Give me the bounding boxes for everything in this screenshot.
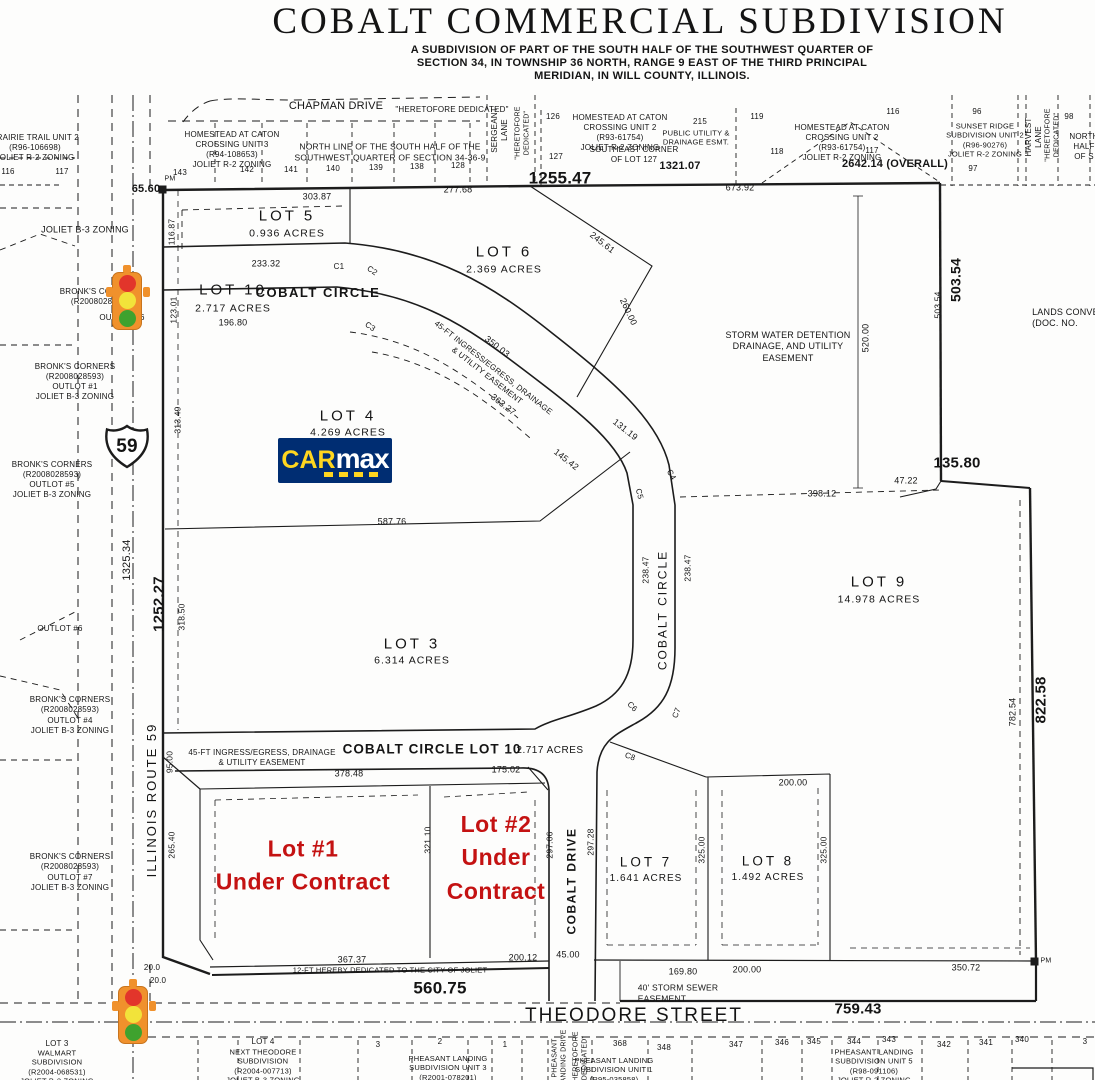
lot10-acres: 2.717 ACRES bbox=[195, 302, 271, 315]
dim-520-00: 520.00 bbox=[860, 324, 871, 353]
outlot-4-label: OUTLOT #4 JOLIET B-3 ZONING bbox=[31, 716, 109, 736]
lot2-under-contract: Lot #2 Under Contract bbox=[447, 808, 546, 908]
parcel-97: 97 bbox=[968, 164, 977, 174]
bronks-corners-1: BRONK'S CORNERS (R2008028593) bbox=[35, 362, 116, 382]
next-theodore-label: NEXT THEODORE SUBDIVISION (R2004-007713)… bbox=[226, 1047, 300, 1080]
parcel-117: 117 bbox=[55, 167, 68, 177]
homestead-unit2-east-label: HOMESTEAD AT CATON CROSSING UNIT 2 (R93-… bbox=[794, 123, 889, 163]
harvest-dedicated-note: "HERETOFORE DEDICATED" bbox=[1044, 108, 1062, 161]
road-harvest-lane: HARVEST LANE bbox=[1024, 117, 1044, 156]
curve-c1: C1 bbox=[334, 262, 345, 272]
parcel-344: 344 bbox=[847, 1037, 861, 1047]
walmart-subdivision-label: WALMART SUBDIVISION (R2004-068531) JOLIE… bbox=[20, 1048, 94, 1080]
parcel-127: 127 bbox=[549, 152, 563, 162]
parcel-98: 98 bbox=[1064, 112, 1073, 122]
dim-20-0-b: 20.0 bbox=[150, 976, 166, 986]
dim-2642-14-overall: 2642.14 (OVERALL) bbox=[842, 158, 948, 172]
dim-297-06: 297.06 bbox=[545, 831, 556, 858]
parcel-142: 142 bbox=[240, 165, 254, 175]
carmax-logo-dashes bbox=[324, 472, 382, 477]
lot9-acres: 14.978 ACRES bbox=[838, 593, 921, 606]
dim-95-00: 95.00 bbox=[165, 751, 176, 773]
parcel-116: 116 bbox=[1, 167, 14, 177]
dim-759-43: 759.43 bbox=[834, 1001, 881, 1020]
dim-321-10: 321.10 bbox=[423, 826, 434, 853]
parcel-342: 342 bbox=[937, 1040, 951, 1050]
lot7-acres: 1.641 ACRES bbox=[610, 873, 683, 886]
dim-350-72: 350.72 bbox=[952, 962, 981, 973]
parcel-215: 215 bbox=[693, 117, 707, 127]
dim-1325-34: 1325.34 bbox=[121, 539, 135, 580]
dim-1321-07: 1321.07 bbox=[659, 160, 700, 174]
pm-marker-top-label: PM bbox=[165, 176, 176, 185]
road-cobalt-circle-vertical: COBALT CIRCLE bbox=[656, 550, 671, 670]
dim-116-87: 116.87 bbox=[167, 219, 178, 246]
dim-398-12: 398.12 bbox=[808, 488, 837, 499]
dim-200-12: 200.12 bbox=[509, 952, 538, 963]
prairie-trail-label: PRAIRIE TRAIL UNIT 2 (R96-106698) JOLIET… bbox=[0, 133, 79, 163]
dim-303-87: 303.87 bbox=[303, 191, 332, 202]
dim-20-0-a: 20.0 bbox=[144, 963, 160, 973]
outlot-6-south-label: OUTLOT #6 bbox=[37, 624, 82, 634]
outlot-1-label: OUTLOT #1 JOLIET B-3 ZONING bbox=[36, 382, 114, 402]
road-theodore-street: THEODORE STREET bbox=[525, 1004, 743, 1028]
yellow-light bbox=[119, 292, 136, 309]
lot5-acres: 0.936 ACRES bbox=[249, 227, 325, 240]
traffic-light-icon bbox=[118, 986, 148, 1044]
dim-822-58: 822.58 bbox=[1033, 676, 1052, 723]
dim-1252-27: 1252.27 bbox=[151, 576, 170, 632]
outlot-5-label: OUTLOT #5 JOLIET B-3 ZONING bbox=[13, 480, 91, 500]
road-cobalt-drive: COBALT DRIVE bbox=[565, 827, 580, 934]
red-light bbox=[125, 989, 142, 1006]
dim-318-50: 318.50 bbox=[177, 603, 188, 630]
dim-65-60: 65.60 bbox=[132, 183, 161, 197]
lot9-name: LOT 9 bbox=[851, 574, 907, 593]
green-light bbox=[119, 310, 136, 327]
pheasant-unit1-label: PHEASANT LANDING SUBDIVISION UNIT 1 (R95… bbox=[575, 1056, 654, 1080]
parcel-368: 368 bbox=[613, 1039, 627, 1049]
dim-313-49: 313.49 bbox=[173, 406, 184, 433]
dim-238-47-east: 238.47 bbox=[683, 554, 694, 581]
homestead-unit3-label: HOMESTEAD AT CATON CROSSING UNIT 3 (R94-… bbox=[184, 130, 279, 170]
lot8-name: LOT 8 bbox=[742, 854, 794, 871]
lot1-under-contract: Lot #1 Under Contract bbox=[216, 833, 390, 900]
dim-325-00-west: 325.00 bbox=[697, 836, 708, 863]
dim-587-76: 587.76 bbox=[378, 516, 407, 527]
page-title: COBALT COMMERCIAL SUBDIVISION bbox=[272, 0, 1007, 45]
sergeant-dedicated-note: "HERETOFORE DEDICATED" bbox=[514, 106, 532, 159]
dim-238-47-west: 238.47 bbox=[641, 556, 652, 583]
lot3-name: LOT 3 bbox=[384, 636, 440, 655]
subtitle-line-1: A SUBDIVISION OF PART OF THE SOUTH HALF … bbox=[411, 44, 874, 58]
dim-175-02: 175.02 bbox=[492, 764, 521, 775]
red-light bbox=[119, 275, 136, 292]
parcel-346: 346 bbox=[775, 1038, 789, 1048]
parcel-343: 343 bbox=[882, 1035, 896, 1045]
traffic-light-icon bbox=[112, 272, 142, 330]
pm-marker-bottom-label: PM bbox=[1041, 958, 1052, 967]
pheasant-unit5-label: PHEASANT LANDING SUBDIVISION UNIT 5 (R98… bbox=[835, 1047, 914, 1080]
dim-135-80: 135.80 bbox=[933, 455, 980, 474]
dim-265-40: 265.40 bbox=[167, 831, 178, 858]
dim-503-54-small: 503.54 bbox=[933, 291, 944, 318]
dim-503-54-large: 503.54 bbox=[947, 258, 965, 302]
route-59-shield: 59 bbox=[116, 435, 138, 459]
parcel-340: 340 bbox=[1015, 1035, 1029, 1045]
easement-storm-sewer: 40' STORM SEWER EASEMENT bbox=[638, 982, 719, 1003]
subtitle-line-3: MERIDIAN, IN WILL COUNTY, ILLINOIS. bbox=[534, 70, 750, 84]
outlot-7-label: OUTLOT #7 JOLIET B-3 ZONING bbox=[31, 873, 109, 893]
bronks-corners-4: BRONK'S CORNERS (R2008028593) bbox=[30, 695, 111, 715]
parcel-138: 138 bbox=[410, 162, 424, 172]
bronks-corners-7: BRONK'S CORNERS (R2008028593) bbox=[30, 852, 111, 872]
parcel-347: 347 bbox=[729, 1040, 743, 1050]
next-theodore-lot-number: LOT 4 bbox=[251, 1037, 274, 1047]
dim-1255-47: 1255.47 bbox=[529, 167, 592, 188]
parcel-139: 139 bbox=[369, 163, 383, 173]
joliet-b3-zoning-label: JOLIET B-3 ZONING bbox=[41, 224, 129, 235]
road-illinois-route-59: ILLINOIS ROUTE 59 bbox=[144, 723, 160, 878]
lot8-acres: 1.492 ACRES bbox=[732, 872, 805, 885]
parcel-128: 128 bbox=[451, 161, 465, 171]
parcel-96: 96 bbox=[972, 107, 981, 117]
parcel-348: 348 bbox=[657, 1043, 671, 1053]
dim-200-00-top: 200.00 bbox=[779, 777, 808, 788]
lot5-name: LOT 5 bbox=[259, 208, 315, 227]
dim-169-80: 169.80 bbox=[669, 966, 698, 977]
carmax-logo-car: CAR bbox=[281, 446, 335, 475]
parcel-141: 141 bbox=[284, 165, 298, 175]
dim-378-48: 378.48 bbox=[335, 768, 364, 779]
road-pheasant-landing-drive: PHEASANT LANDING DRIVE bbox=[551, 1029, 569, 1080]
road-cobalt-circle-upper: COBALT CIRCLE bbox=[256, 285, 381, 301]
dim-200-00-bottom: 200.00 bbox=[733, 964, 762, 975]
road-sergeant-lane: SERGEANT LANE bbox=[490, 107, 510, 153]
north-half-note: NORTH HALF OF S bbox=[1069, 132, 1095, 162]
dim-277-68: 277.68 bbox=[444, 184, 473, 195]
parcel-341: 341 bbox=[979, 1038, 993, 1048]
parcel-119: 119 bbox=[750, 112, 763, 122]
pheasant-unit3-label: PHEASANT LANDING SUBDIVISION UNIT 3 (R20… bbox=[409, 1054, 488, 1080]
lands-conveyed-note: LANDS CONVEYED (DOC. NO. bbox=[1032, 307, 1095, 330]
sunset-ridge-label: SUNSET RIDGE SUBDIVISION UNIT 2 (R96-902… bbox=[946, 121, 1024, 159]
parcel-unit3-1: 1 bbox=[503, 1040, 508, 1050]
dim-325-00-east: 325.00 bbox=[819, 836, 830, 863]
dim-123-01: 123.01 bbox=[169, 296, 180, 323]
subtitle-line-2: SECTION 34, IN TOWNSHIP 36 NORTH, RANGE … bbox=[417, 57, 867, 71]
lot6-name: LOT 6 bbox=[476, 244, 532, 263]
carmax-logo: CARmax bbox=[278, 438, 392, 483]
dim-673-92: 673.92 bbox=[726, 182, 755, 193]
bronks-corners-5: BRONK'S CORNERS (R2008028593) bbox=[12, 460, 93, 480]
parcel-118: 118 bbox=[770, 147, 783, 157]
dim-233-32: 233.32 bbox=[252, 258, 281, 269]
lot3-acres: 6.314 ACRES bbox=[374, 654, 450, 667]
dim-782-54: 782.54 bbox=[1007, 698, 1018, 727]
dim-196-80: 196.80 bbox=[219, 317, 248, 328]
plat-map: COBALT COMMERCIAL SUBDIVISION A SUBDIVIS… bbox=[0, 0, 1095, 1080]
easement-storm-water: STORM WATER DETENTION DRAINAGE, AND UTIL… bbox=[725, 330, 850, 364]
yellow-light bbox=[125, 1006, 142, 1023]
dim-560-75: 560.75 bbox=[413, 977, 466, 998]
dedication-12ft-note: 12-FT HEREBY DEDICATED TO THE CITY OF JO… bbox=[293, 965, 488, 974]
parcel-116-east: 116 bbox=[886, 107, 899, 117]
easement-ingress-lower: 45-FT INGRESS/EGRESS, DRAINAGE & UTILITY… bbox=[188, 748, 335, 768]
north-line-note: NORTH LINE OF THE SOUTH HALF OF THE SOUT… bbox=[294, 141, 485, 162]
dim-45-00: 45.00 bbox=[556, 949, 580, 960]
parcel-339-partial: 3 bbox=[1083, 1037, 1088, 1047]
dim-297-28: 297.28 bbox=[586, 828, 597, 855]
strip-lot10-acres: 2.717 ACRES bbox=[516, 745, 583, 758]
parcel-140: 140 bbox=[326, 164, 340, 174]
parcel-117-east: 117 bbox=[865, 146, 878, 156]
green-light bbox=[125, 1024, 142, 1041]
carmax-logo-max: max bbox=[336, 443, 389, 475]
lot6-acres: 2.369 ACRES bbox=[466, 263, 542, 276]
lot4-name: LOT 4 bbox=[320, 408, 376, 427]
dim-47-22: 47.22 bbox=[894, 475, 918, 486]
road-chapman-drive: CHAPMAN DRIVE bbox=[289, 100, 383, 114]
strip-lot10-name: COBALT CIRCLE LOT 10 bbox=[343, 742, 522, 759]
parcel-345: 345 bbox=[807, 1037, 821, 1047]
parcel-unit3-3: 3 bbox=[376, 1040, 381, 1050]
dim-367-37: 367.37 bbox=[338, 954, 367, 965]
parcel-unit3-2: 2 bbox=[438, 1037, 443, 1047]
lot7-name: LOT 7 bbox=[620, 855, 672, 872]
parcel-126: 126 bbox=[546, 112, 560, 122]
